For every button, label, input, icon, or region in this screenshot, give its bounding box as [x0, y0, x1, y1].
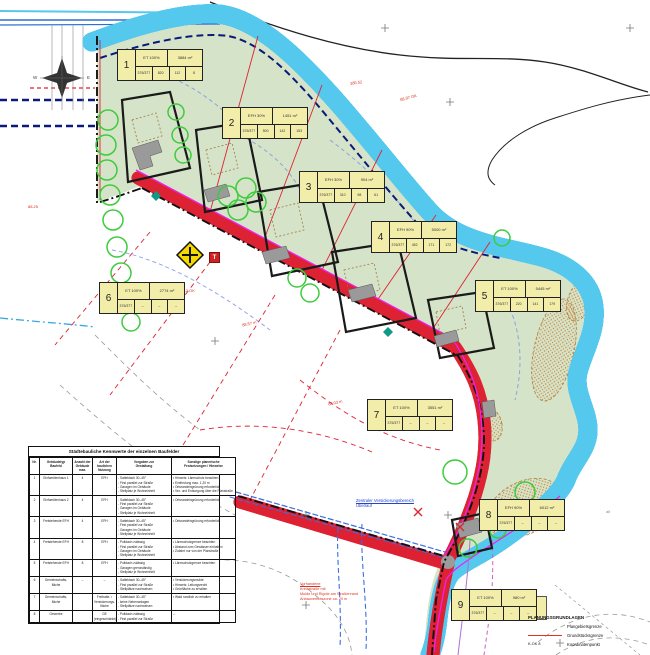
- site-plan-sheet: 1ET 100%3884 m²376/37782011282EFH 30%145…: [0, 0, 650, 655]
- lot-label-7: 7ET 100%3551 m²376/377–––: [367, 399, 453, 431]
- lot-cell: 376/377: [118, 300, 135, 313]
- compass-west-label: W: [33, 75, 37, 80]
- road-note: Vorhandene Kreisstraße mit Mulde und Rig…: [300, 582, 358, 602]
- table-cell: Freistehende EFH: [40, 559, 73, 576]
- table-cell: Freistehende EFH: [40, 517, 73, 538]
- table-cell: EFH: [93, 559, 117, 576]
- lot-cell: 171: [424, 239, 441, 252]
- lot-cell: 153: [291, 125, 307, 138]
- table-cell: EFH: [93, 474, 117, 495]
- characteristics-table: Städtebauliche Kennwerte der einzelnen B…: [28, 446, 220, 624]
- lot-cell: 376/377: [318, 189, 335, 202]
- red-line-sample: [528, 632, 562, 638]
- compass-rose: [40, 56, 84, 100]
- table-cell: Freihalte- / Versickerungs- fläche: [93, 593, 117, 610]
- lot-cell: 172: [440, 239, 456, 252]
- table-cell: –: [93, 576, 117, 593]
- table-column-header: Anzahl der Gebäude max.: [73, 458, 93, 475]
- lot-cell: 61: [368, 189, 384, 202]
- table-cell: 6: [30, 576, 40, 593]
- lot-cell: 376/377: [470, 607, 487, 620]
- table-cell: - Satteldach 30–45° - First parallel zur…: [117, 474, 172, 495]
- lot-number: 7: [368, 400, 386, 430]
- lot-type: ET 100%: [386, 400, 418, 416]
- lot-cell: 142: [275, 125, 292, 138]
- table-row: 8GewerbeGE (eingeschränkt)- Pultdach zul…: [30, 610, 236, 623]
- lot-area: 904 m²: [350, 172, 384, 188]
- table-cell: [73, 593, 93, 610]
- table-column-header: Gebäudetyp Baufeld: [40, 458, 73, 475]
- lot-cell: –: [135, 300, 152, 313]
- lot-area: 6012 m²: [530, 500, 564, 516]
- lot-area: 5000 m²: [422, 222, 456, 238]
- table-row: 2Einfamilienhaus 24EFH- Satteldach 30–45…: [30, 496, 236, 517]
- table-cell: - Satteldach 30–45° - keine Nebenanlagen…: [117, 593, 172, 610]
- lot-cell: 376/377: [241, 125, 258, 138]
- lot-cell: 141: [528, 298, 545, 311]
- table-column-header: Nr.: [30, 458, 40, 475]
- table-row: 7Gemeinschafts- flächeFreihalte- / Versi…: [30, 593, 236, 610]
- table-cell: • Wald randlich zu erhalten: [172, 593, 236, 610]
- legend-title: PLANUNGSGRUNDLAGEN: [528, 615, 648, 620]
- table-cell: EFH: [93, 517, 117, 538]
- table-column-header: Sonstige planerische Festsetzungen / Hin…: [172, 458, 236, 475]
- lot-cell: 179: [544, 298, 560, 311]
- lot-number: 3: [300, 172, 318, 202]
- lot-cell: –: [548, 517, 564, 530]
- lot-number: 6: [100, 283, 118, 313]
- table-cell: - Satteldach 30–45° - First parallel zur…: [117, 517, 172, 538]
- lot-cell: 452: [407, 239, 424, 252]
- table-cell: • Hinweis: Lärmschutz beachten • Einfrie…: [172, 474, 236, 495]
- lot-number: 4: [372, 222, 390, 252]
- lot-cell: 376/377: [136, 67, 153, 80]
- lot-area: 3884 m²: [168, 50, 202, 66]
- table-row: 1Einfamilienhaus 14EFH- Satteldach 30–45…: [30, 474, 236, 495]
- lot-cell: 376/377: [498, 517, 515, 530]
- lot-type: EFH 90%: [498, 500, 530, 516]
- table-cell: –: [172, 610, 236, 623]
- lot-cell: –: [487, 607, 504, 620]
- alt-note: alt: [606, 509, 610, 514]
- lot-type: ET 100%: [470, 590, 502, 606]
- lot-type: EFH 30%: [241, 108, 273, 124]
- hydrant-t-sign: T: [209, 252, 220, 263]
- lot-cell: –: [168, 300, 184, 313]
- legend-item-parcel: Grundstücksgrenze: [528, 632, 648, 638]
- lot-label-4: 4EFH 90%5000 m²376/377452171172: [371, 221, 457, 253]
- lot-area: 980 m²: [502, 590, 536, 606]
- table-cell: Gemeinschafts- fläche: [40, 576, 73, 593]
- table-cell: 4: [73, 517, 93, 538]
- table-cell: –: [73, 576, 93, 593]
- lot-label-5: 5ET 100%5445 m²376/377220141179: [475, 280, 561, 312]
- lot-type: EFH 30%: [318, 172, 350, 188]
- legend-item-coordinate: K-OK 8 Koordinatenpunkt: [528, 641, 648, 647]
- table-row: 3Freistehende EFH4EFH- Satteldach 30–45°…: [30, 517, 236, 538]
- lot-cell: –: [403, 417, 420, 430]
- lot-label-6: 6ET 100%2774 m²376/377–––: [99, 282, 185, 314]
- lot-cell: 98: [352, 189, 369, 202]
- lot-type: EFH 90%: [390, 222, 422, 238]
- legend-item-boundary: Plangebietsgrenze: [528, 623, 648, 629]
- table-cell: 4: [30, 538, 40, 559]
- lot-cell: 112: [170, 67, 187, 80]
- table-title: Städtebauliche Kennwerte der einzelnen B…: [29, 447, 219, 457]
- table-cell: - Satteldach 30–45° - First parallel zur…: [117, 576, 172, 593]
- lot-cell: 8: [186, 67, 202, 80]
- lot-area: 3551 m²: [418, 400, 452, 416]
- lot-label-8: 8EFH 90%6012 m²376/377–––: [479, 499, 565, 531]
- lot-label-3: 3EFH 30%904 m²376/3773109861: [299, 171, 385, 203]
- table-cell: 7: [30, 593, 40, 610]
- lot-cell: –: [532, 517, 549, 530]
- lot-cell: 376/377: [390, 239, 407, 252]
- coordinate-sample: K-OK 8: [528, 641, 562, 647]
- table-row: 6Gemeinschafts- fläche––- Satteldach 30–…: [30, 576, 236, 593]
- lot-cell: –: [436, 417, 452, 430]
- elevation-label: 88.25: [28, 204, 38, 209]
- table-cell: 8: [73, 559, 93, 576]
- table-cell: • Lärmschutzgrenze beachten: [172, 559, 236, 576]
- lot-label-2: 2EFH 30%1451 m²376/377500142153: [222, 107, 308, 139]
- table-cell: • Ortsrandeingrünung erforderlich: [172, 496, 236, 517]
- table-cell: - Pultdach zulässig - First parallel zur…: [117, 610, 172, 623]
- lot-number: 5: [476, 281, 494, 311]
- table-cell: Freistehende EFH: [40, 538, 73, 559]
- table-cell: 8: [30, 610, 40, 623]
- table-column-header: Art der baulichen Nutzung: [93, 458, 117, 475]
- table-cell: • Lärmschutzgrenze beachten • Abstand zu…: [172, 538, 236, 559]
- table-cell: Einfamilienhaus 2: [40, 496, 73, 517]
- lot-area: 5445 m²: [526, 281, 560, 297]
- infiltration-note: Zentraler Versickerungsbereich Überlauf: [356, 498, 414, 509]
- table-cell: 2: [30, 496, 40, 517]
- lot-label-9: 9ET 100%980 m²376/377–––: [451, 589, 537, 621]
- lot-cell: 376/377: [494, 298, 511, 311]
- table-cell: 4: [73, 496, 93, 517]
- lot-number: 8: [480, 500, 498, 530]
- table-row: 4Freistehende EFH8EFH- Pultdach zulässig…: [30, 538, 236, 559]
- lot-cell: 310: [335, 189, 352, 202]
- table-cell: 4: [73, 474, 93, 495]
- lot-cell: –: [420, 417, 437, 430]
- table-cell: EFH: [93, 538, 117, 559]
- table-cell: Gewerbe: [40, 610, 73, 623]
- lot-type: ET 100%: [118, 283, 150, 299]
- table-cell: - Pultdach zulässig - First parallel zur…: [117, 538, 172, 559]
- lot-area: 1451 m²: [273, 108, 307, 124]
- compass-east-label: E: [87, 75, 90, 80]
- lot-cell: 376/377: [386, 417, 403, 430]
- lot-cell: 820: [153, 67, 170, 80]
- lot-label-1: 1ET 100%3884 m²376/3778201128: [117, 49, 203, 81]
- legend: PLANUNGSGRUNDLAGEN Plangebietsgrenze Gru…: [528, 615, 648, 650]
- lot-number: 9: [452, 590, 470, 620]
- warning-diamond-sign: [177, 242, 203, 268]
- dashdot-line-sample: [528, 623, 562, 629]
- table-cell: 1: [30, 474, 40, 495]
- lot-cell: –: [152, 300, 169, 313]
- table-cell: • Ortsrandeingrünung erforderlich: [172, 517, 236, 538]
- table-column-header: Vorgaben zur Gestaltung: [117, 458, 172, 475]
- table-cell: [73, 610, 93, 623]
- table-cell: 3: [30, 517, 40, 538]
- table-cell: 5: [30, 559, 40, 576]
- table-row: 5Freistehende EFH8EFH- Pultdach zulässig…: [30, 559, 236, 576]
- lot-cell: 220: [511, 298, 528, 311]
- lot-number: 1: [118, 50, 136, 80]
- table-cell: Gemeinschafts- fläche: [40, 593, 73, 610]
- lot-cell: –: [504, 607, 521, 620]
- table-cell: - Pultdach zulässig - Garagen grenzständ…: [117, 559, 172, 576]
- lot-area: 2774 m²: [150, 283, 184, 299]
- table-cell: • Versickerungsmulde • Hinweis: Leitungs…: [172, 576, 236, 593]
- lot-type: ET 100%: [494, 281, 526, 297]
- table-cell: EFH: [93, 496, 117, 517]
- table-grid: Nr.Gebäudetyp BaufeldAnzahl der Gebäude …: [29, 457, 236, 623]
- lot-type: ET 100%: [136, 50, 168, 66]
- table-header: Nr.Gebäudetyp BaufeldAnzahl der Gebäude …: [30, 458, 236, 475]
- table-cell: - Satteldach 30–45° - First parallel zur…: [117, 496, 172, 517]
- lot-cell: 500: [258, 125, 275, 138]
- lot-cell: –: [515, 517, 532, 530]
- table-cell: GE (eingeschränkt): [93, 610, 117, 623]
- table-cell: Einfamilienhaus 1: [40, 474, 73, 495]
- table-cell: 8: [73, 538, 93, 559]
- lot-number: 2: [223, 108, 241, 138]
